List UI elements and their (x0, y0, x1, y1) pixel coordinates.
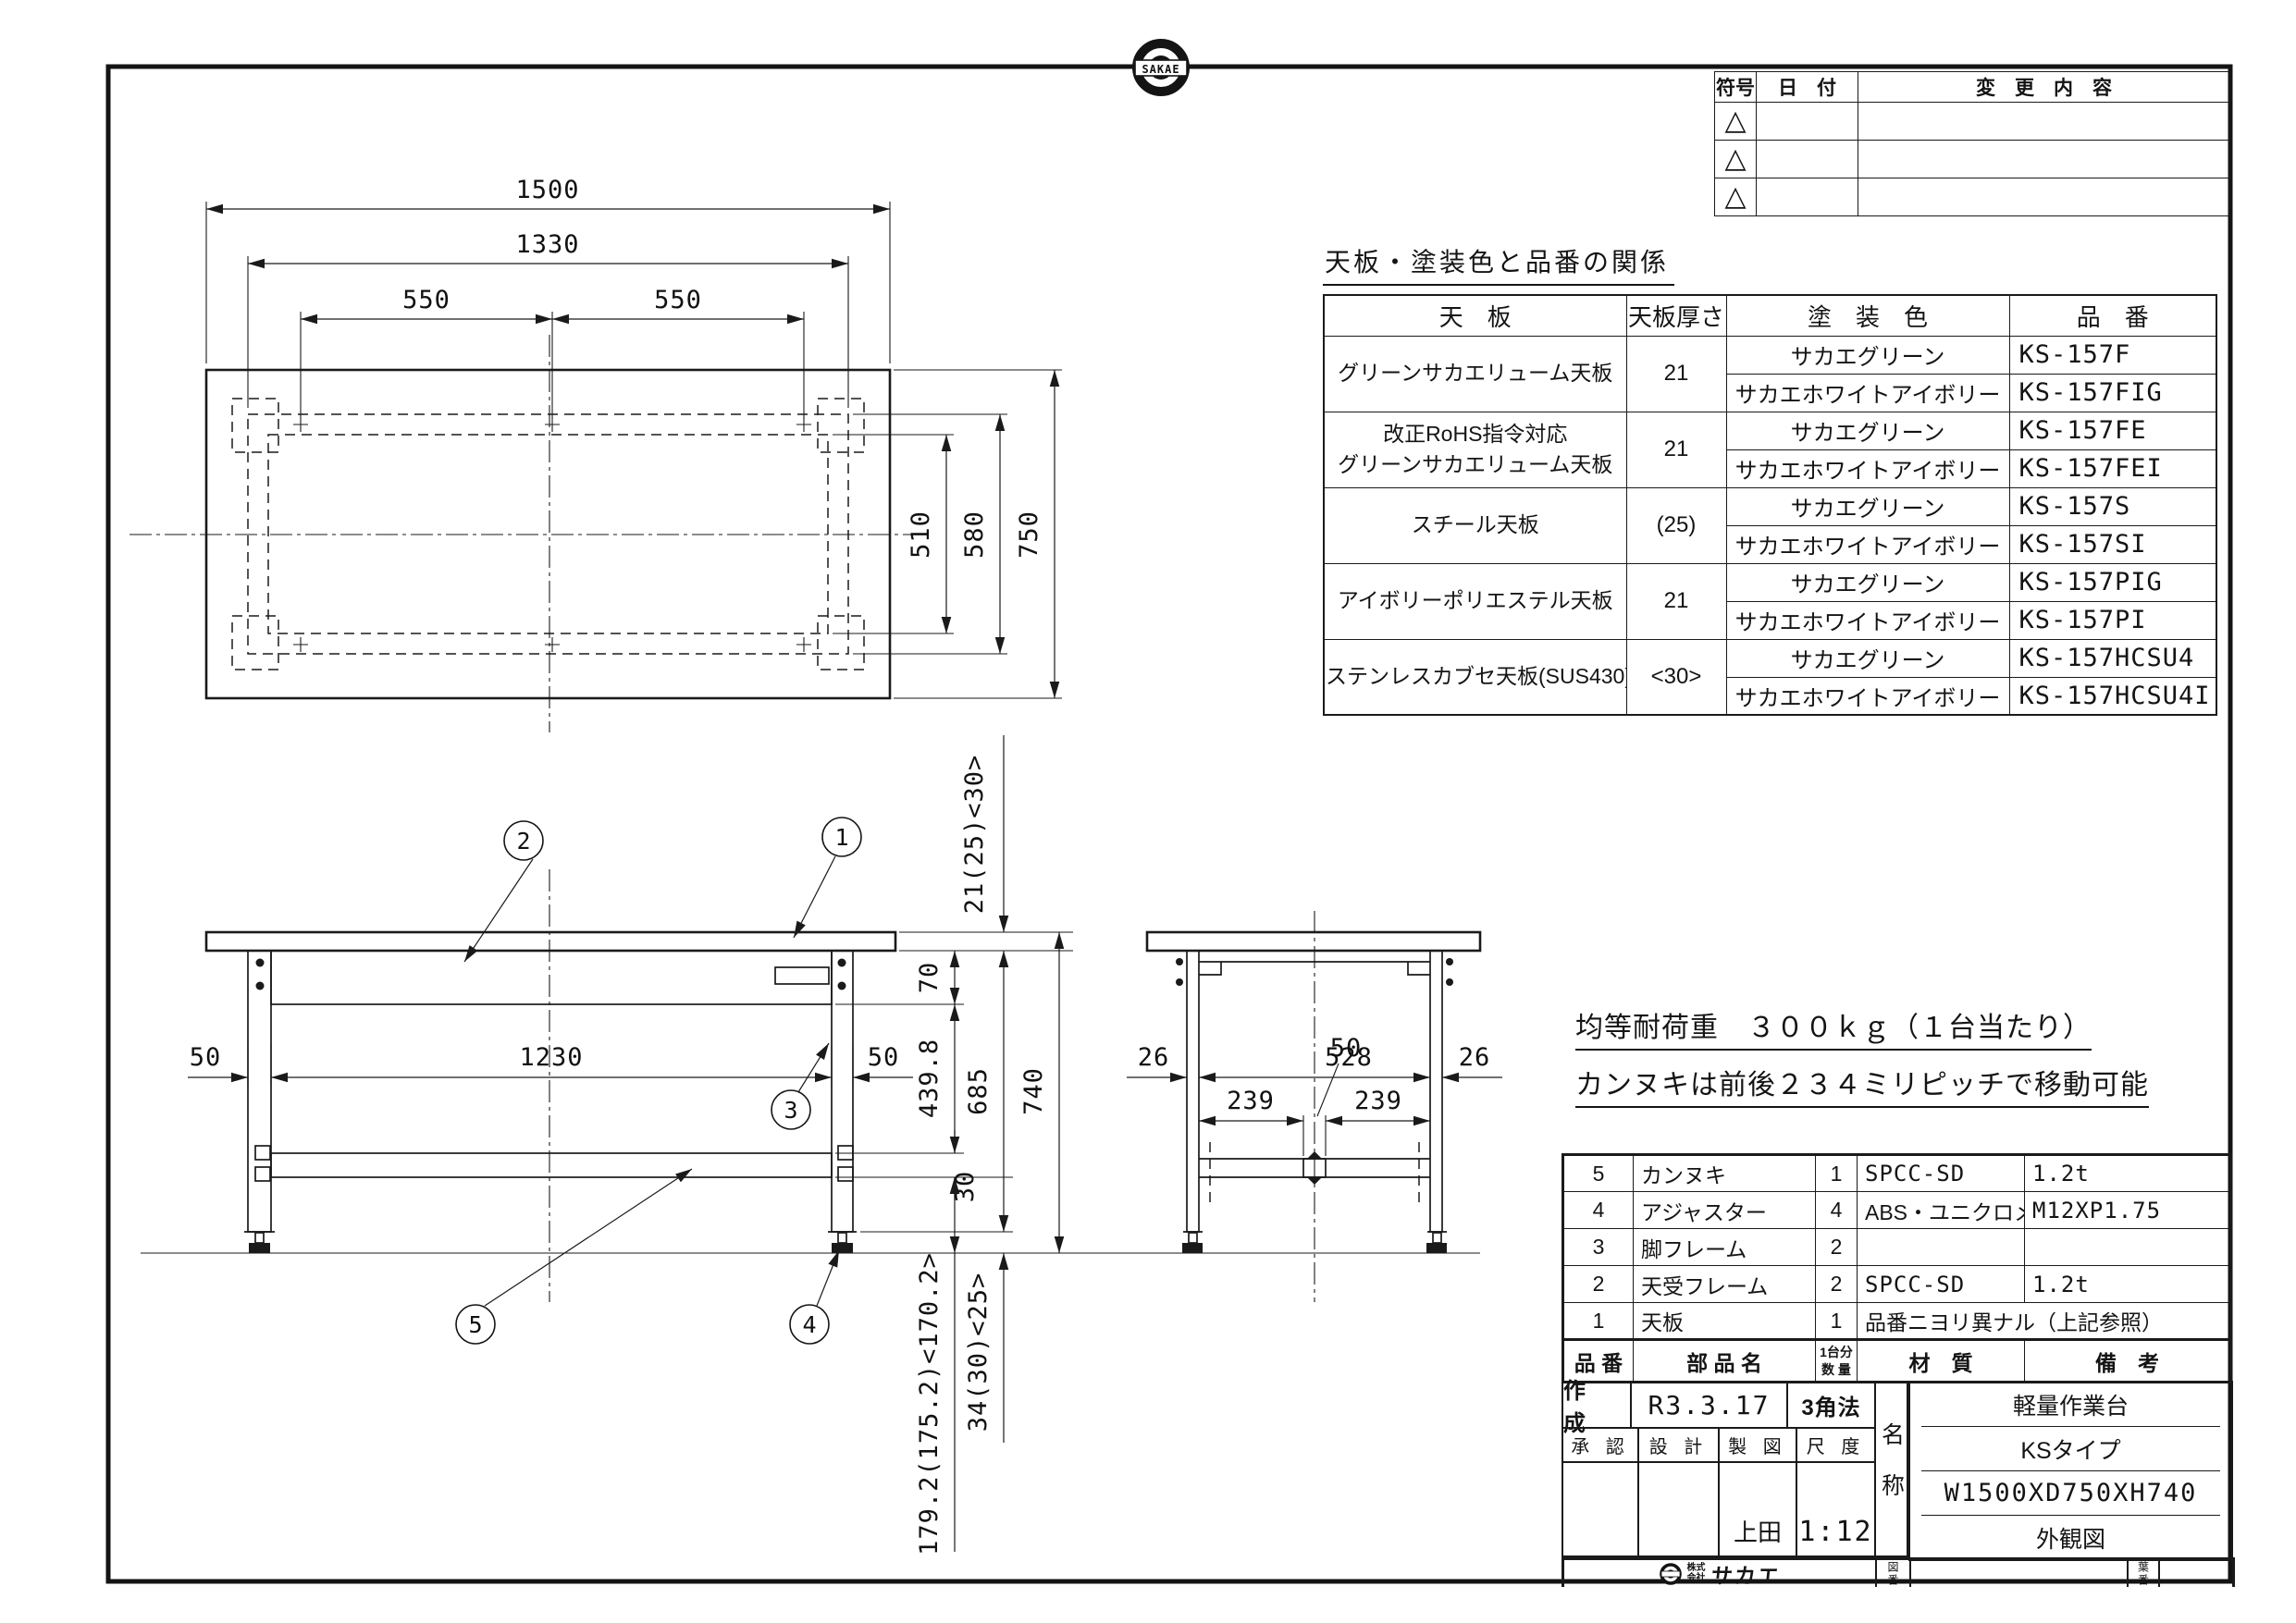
svg-text:4: 4 (802, 1311, 816, 1338)
dim-50-left: 50 (190, 1043, 222, 1072)
design-label: 設 計 (1637, 1427, 1720, 1463)
dim-70: 70 (915, 962, 944, 994)
revision-symbol-icon: △ (1715, 141, 1757, 178)
dim-580: 580 (960, 510, 989, 559)
design-sign-cell (1637, 1461, 1720, 1557)
parts-header-row: 品 番 部 品 名 1台分数 量 材 質 備 考 (1563, 1340, 2231, 1383)
part-material: SPCC-SD (1858, 1155, 2025, 1192)
company-prefix: 株式会社 (1687, 1564, 1706, 1583)
side-leg-left (1187, 951, 1199, 1232)
revision-header-symbol: 符号 (1715, 72, 1757, 103)
dim-550-left: 550 (402, 286, 451, 314)
part-no: 3 (1563, 1229, 1634, 1266)
plan-leg-hidden (232, 616, 278, 670)
side-leg-right (1430, 951, 1442, 1232)
plan-leg-hidden (232, 399, 278, 452)
side-elevation-view: 26 528 26 239 239 50 (1127, 911, 1502, 1302)
part-remarks (2025, 1229, 2231, 1266)
callout-1: 1 (794, 818, 861, 938)
spec-partno: KS-157F (2009, 336, 2216, 374)
parts-header-material: 材 質 (1858, 1340, 2025, 1383)
svg-text:1: 1 (834, 824, 848, 851)
part-material: 品番ニヨリ異ナル（上記参照） (1858, 1303, 2231, 1340)
dim-239-right: 239 (1354, 1087, 1402, 1115)
parts-row: 4 アジャスター 4 ABS・ユニクロメッキ M12XP1.75 (1563, 1192, 2231, 1229)
product-type: KSタイプ (1921, 1427, 2220, 1471)
dim-1230: 1230 (519, 1043, 583, 1072)
revision-change-cell (1858, 178, 2230, 216)
spec-header-color: 塗 装 色 (1726, 295, 2009, 336)
side-adjuster-right (1426, 1243, 1447, 1253)
part-remarks: 1.2t (2025, 1155, 2231, 1192)
spec-plate: 改正RoHS指令対応グリーンサカエリューム天板 (1324, 412, 1626, 487)
part-no: 1 (1563, 1303, 1634, 1340)
revision-symbol-icon: △ (1715, 103, 1757, 141)
side-adjuster-left (1182, 1243, 1203, 1253)
dim-750: 750 (1015, 510, 1043, 559)
revision-date-cell (1757, 178, 1858, 216)
spec-thickness: 21 (1626, 412, 1726, 487)
svg-text:5: 5 (468, 1311, 482, 1338)
spec-plate: アイボリーポリエステル天板 (1324, 563, 1626, 639)
front-elevation-view: 50 1230 50 70 439.8 30 179.2(175.2)<170.… (141, 735, 1480, 1555)
part-no: 2 (1563, 1266, 1634, 1303)
company-logo: 株式会社 サカエ (1564, 1560, 1877, 1587)
created-label: 作 成 (1562, 1381, 1632, 1429)
approval-sign-cell (1562, 1461, 1639, 1557)
company-name: サカエ (1710, 1558, 1783, 1590)
parts-header-name: 部 品 名 (1634, 1340, 1816, 1383)
spec-color: サカエグリーン (1726, 336, 2009, 374)
part-material (1858, 1229, 2025, 1266)
front-apron-slot (775, 967, 829, 984)
dim-179-2: 179.2(175.2)<170.2> (915, 1252, 944, 1555)
spec-partno: KS-157PI (2009, 601, 2216, 639)
spec-color: サカエホワイトアイボリー (1726, 601, 2009, 639)
front-adjuster-left (249, 1243, 270, 1253)
spec-thickness: 21 (1626, 563, 1726, 639)
spec-color: サカエグリーン (1726, 412, 2009, 449)
sakae-stamp-icon: SAKAE (1135, 43, 1187, 92)
sakae-stamp-text: SAKAE (1142, 63, 1179, 76)
spec-color: サカエグリーン (1726, 487, 2009, 525)
side-tabletop (1147, 932, 1480, 951)
callout-5: 5 (456, 1169, 692, 1344)
part-material: SPCC-SD (1858, 1266, 2025, 1303)
svg-text:3: 3 (784, 1097, 797, 1124)
dim-239-left: 239 (1227, 1087, 1275, 1115)
spec-color: サカエグリーン (1726, 639, 2009, 677)
product-name: 軽量作業台 (1921, 1383, 2220, 1427)
revision-header-date: 日 付 (1757, 72, 1858, 103)
sakae-logo-icon (1660, 1563, 1682, 1585)
callout-2: 2 (464, 821, 543, 962)
spec-partno: KS-157FEI (2009, 449, 2216, 487)
parts-row: 5 カンヌキ 1 SPCC-SD 1.2t (1563, 1155, 2231, 1192)
parts-row: 3 脚フレーム 2 (1563, 1229, 2231, 1266)
spec-plate: スチール天板 (1324, 487, 1626, 563)
dim-439-8: 439.8 (915, 1039, 944, 1118)
spec-table-title: 天板・塗装色と品番の関係 (1323, 242, 1674, 286)
name-label: 名称 (1874, 1381, 1908, 1557)
parts-row: 2 天受フレーム 2 SPCC-SD 1.2t (1563, 1266, 2231, 1303)
scale-label: 尺 度 (1796, 1427, 1876, 1463)
plan-leg-hidden (818, 399, 864, 452)
dim-26-right: 26 (1459, 1043, 1491, 1072)
part-name: 脚フレーム (1634, 1229, 1816, 1266)
front-kannuki-rail (271, 1153, 832, 1177)
callout-4: 4 (790, 1250, 839, 1344)
spec-partno: KS-157HCSU4I (2009, 677, 2216, 715)
spec-partno: KS-157FIG (2009, 374, 2216, 412)
spec-plate: グリーンサカエリューム天板 (1324, 336, 1626, 412)
front-tabletop (206, 932, 895, 951)
front-leg-left (248, 951, 271, 1232)
spec-color: サカエホワイトアイボリー (1726, 449, 2009, 487)
parts-header-remarks: 備 考 (2025, 1340, 2231, 1383)
part-qty: 2 (1816, 1266, 1858, 1303)
plan-view: 1500 1330 550 550 510 580 750 (130, 176, 1062, 732)
front-leg-right (832, 951, 853, 1232)
spec-color: サカエホワイトアイボリー (1726, 374, 2009, 412)
spec-header-plate: 天 板 (1324, 295, 1626, 336)
dim-30: 30 (951, 1171, 980, 1203)
spec-partno: KS-157PIG (2009, 563, 2216, 601)
created-date: R3.3.17 (1630, 1381, 1788, 1429)
drafter-name: 上田 (1718, 1461, 1797, 1557)
spec-thickness: (25) (1626, 487, 1726, 563)
part-name: アジャスター (1634, 1192, 1816, 1229)
revision-date-cell (1757, 141, 1858, 178)
drawing-scale: 1:12 (1796, 1461, 1876, 1557)
dim-34: 34(30)<25> (964, 1273, 993, 1432)
part-qty: 2 (1816, 1229, 1858, 1266)
front-adjuster-right (832, 1243, 853, 1253)
spec-plate: ステンレスカブセ天板(SUS430) (1324, 639, 1626, 715)
spec-table: 天 板 天板厚さ 塗 装 色 品 番 グリーンサカエリューム天板 21 サカエグ… (1323, 294, 2217, 716)
dim-50-right: 50 (868, 1043, 900, 1072)
drawing-sheet: SAKAE 1500 1330 550 550 (0, 0, 2296, 1623)
revision-header-change: 変 更 内 容 (1858, 72, 2230, 103)
spec-thickness: <30> (1626, 639, 1726, 715)
dim-top-thickness: 21(25)<30> (960, 755, 989, 915)
revision-change-cell (1858, 103, 2230, 141)
part-remarks: 1.2t (2025, 1266, 2231, 1303)
sheet-no-label: 葉番 (2129, 1560, 2160, 1587)
callout-3: 3 (772, 1043, 829, 1129)
part-no: 5 (1563, 1155, 1634, 1192)
spec-partno: KS-157SI (2009, 525, 2216, 563)
spec-color: サカエグリーン (1726, 563, 2009, 601)
drawing-no-cell (1911, 1560, 2129, 1587)
parts-row: 1 天板 1 品番ニヨリ異ナル（上記参照） (1563, 1303, 2231, 1340)
plan-frame-hidden-outer (248, 414, 848, 654)
spec-partno: KS-157HCSU4 (2009, 639, 2216, 677)
parts-header-qty: 1台分数 量 (1816, 1340, 1858, 1383)
projection-method: 3角法 (1786, 1381, 1876, 1429)
spec-header-partno: 品 番 (2009, 295, 2216, 336)
revision-change-cell (1858, 141, 2230, 178)
sheet-no-cell (2160, 1560, 2232, 1587)
drawing-no-label: 図番 (1877, 1560, 1911, 1587)
dim-50-kannuki: 50 (1330, 1034, 1363, 1063)
svg-text:2: 2 (516, 828, 530, 855)
dim-510: 510 (907, 510, 935, 559)
draft-label: 製 図 (1718, 1427, 1797, 1463)
part-qty: 4 (1816, 1192, 1858, 1229)
part-no: 4 (1563, 1192, 1634, 1229)
spec-color: サカエホワイトアイボリー (1726, 677, 2009, 715)
dim-740: 740 (1019, 1067, 1048, 1115)
spec-partno: KS-157FE (2009, 412, 2216, 449)
name-box: 軽量作業台 KSタイプ W1500XD750XH740 外観図 (1908, 1381, 2233, 1561)
spec-color: サカエホワイトアイボリー (1726, 525, 2009, 563)
drawing-kind: 外観図 (1910, 1516, 2231, 1559)
spec-header-thickness: 天板厚さ (1626, 295, 1726, 336)
part-qty: 1 (1816, 1155, 1858, 1192)
revision-date-cell (1757, 103, 1858, 141)
plan-leg-hidden (818, 616, 864, 670)
dim-1330: 1330 (515, 230, 579, 259)
part-name: 天板 (1634, 1303, 1816, 1340)
part-name: 天受フレーム (1634, 1266, 1816, 1303)
front-apron (271, 951, 832, 1004)
dim-1500: 1500 (515, 176, 579, 204)
dim-550-right: 550 (654, 286, 702, 314)
revision-symbol-icon: △ (1715, 178, 1757, 216)
approval-label: 承 認 (1562, 1427, 1639, 1463)
notes: 均等耐荷重 ３００ｋｇ（１台当たり） カンヌキは前後２３４ミリピッチで移動可能 (1575, 1004, 2149, 1119)
part-name: カンヌキ (1634, 1155, 1816, 1192)
part-material: ABS・ユニクロメッキ (1858, 1192, 2025, 1229)
product-size: W1500XD750XH740 (1921, 1471, 2220, 1516)
part-remarks: M12XP1.75 (2025, 1192, 2231, 1229)
load-capacity-note: 均等耐荷重 ３００ｋｇ（１台当たり） (1575, 1004, 2092, 1051)
kannuki-pitch-note: カンヌキは前後２３４ミリピッチで移動可能 (1575, 1062, 2149, 1108)
parts-table: 5 カンヌキ 1 SPCC-SD 1.2t 4 アジャスター 4 ABS・ユニク… (1562, 1153, 2232, 1383)
spec-partno: KS-157S (2009, 487, 2216, 525)
part-qty: 1 (1816, 1303, 1858, 1340)
company-row: 株式会社 サカエ 図番 葉番 (1562, 1557, 2235, 1587)
revision-table: 符号 日 付 変 更 内 容 △ △ △ (1714, 71, 2230, 216)
dim-685: 685 (964, 1067, 993, 1115)
spec-thickness: 21 (1626, 336, 1726, 412)
dim-26-left: 26 (1138, 1043, 1170, 1072)
